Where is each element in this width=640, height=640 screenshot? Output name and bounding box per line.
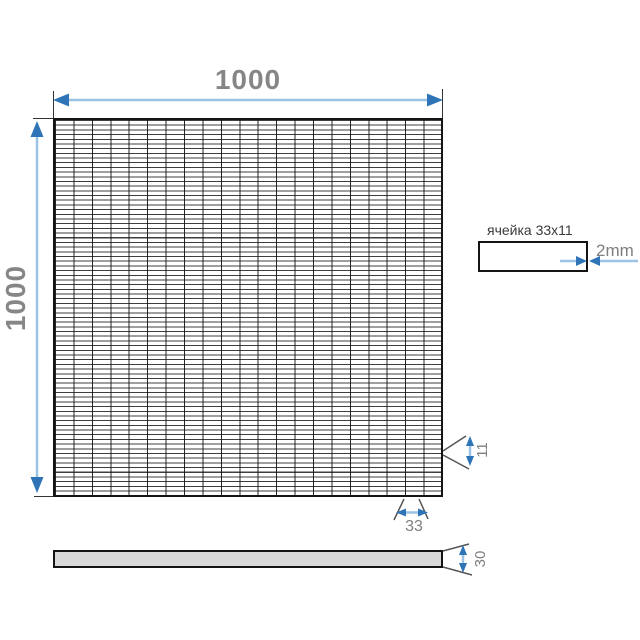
- height-dimension-label: 1000: [2, 263, 30, 333]
- width-dimension-label: 1000: [210, 64, 286, 96]
- cell-width-dimension-label: 33: [396, 518, 432, 536]
- cell-height-dimension-label: 11: [475, 437, 491, 463]
- dimension-lines-layer: [0, 0, 640, 640]
- dimension-lines: [37, 100, 638, 565]
- cell-detail-label: ячейка 33x11: [487, 222, 573, 238]
- dimension-arrowheads: [31, 94, 601, 574]
- thickness-dimension-label: 30: [473, 546, 489, 572]
- wire-diameter-label: 2mm: [596, 241, 634, 261]
- extension-lines: [33, 89, 443, 497]
- technical-drawing-canvas: 1000 1000 ячейка 33x11 2mm 33 11 30: [0, 0, 640, 640]
